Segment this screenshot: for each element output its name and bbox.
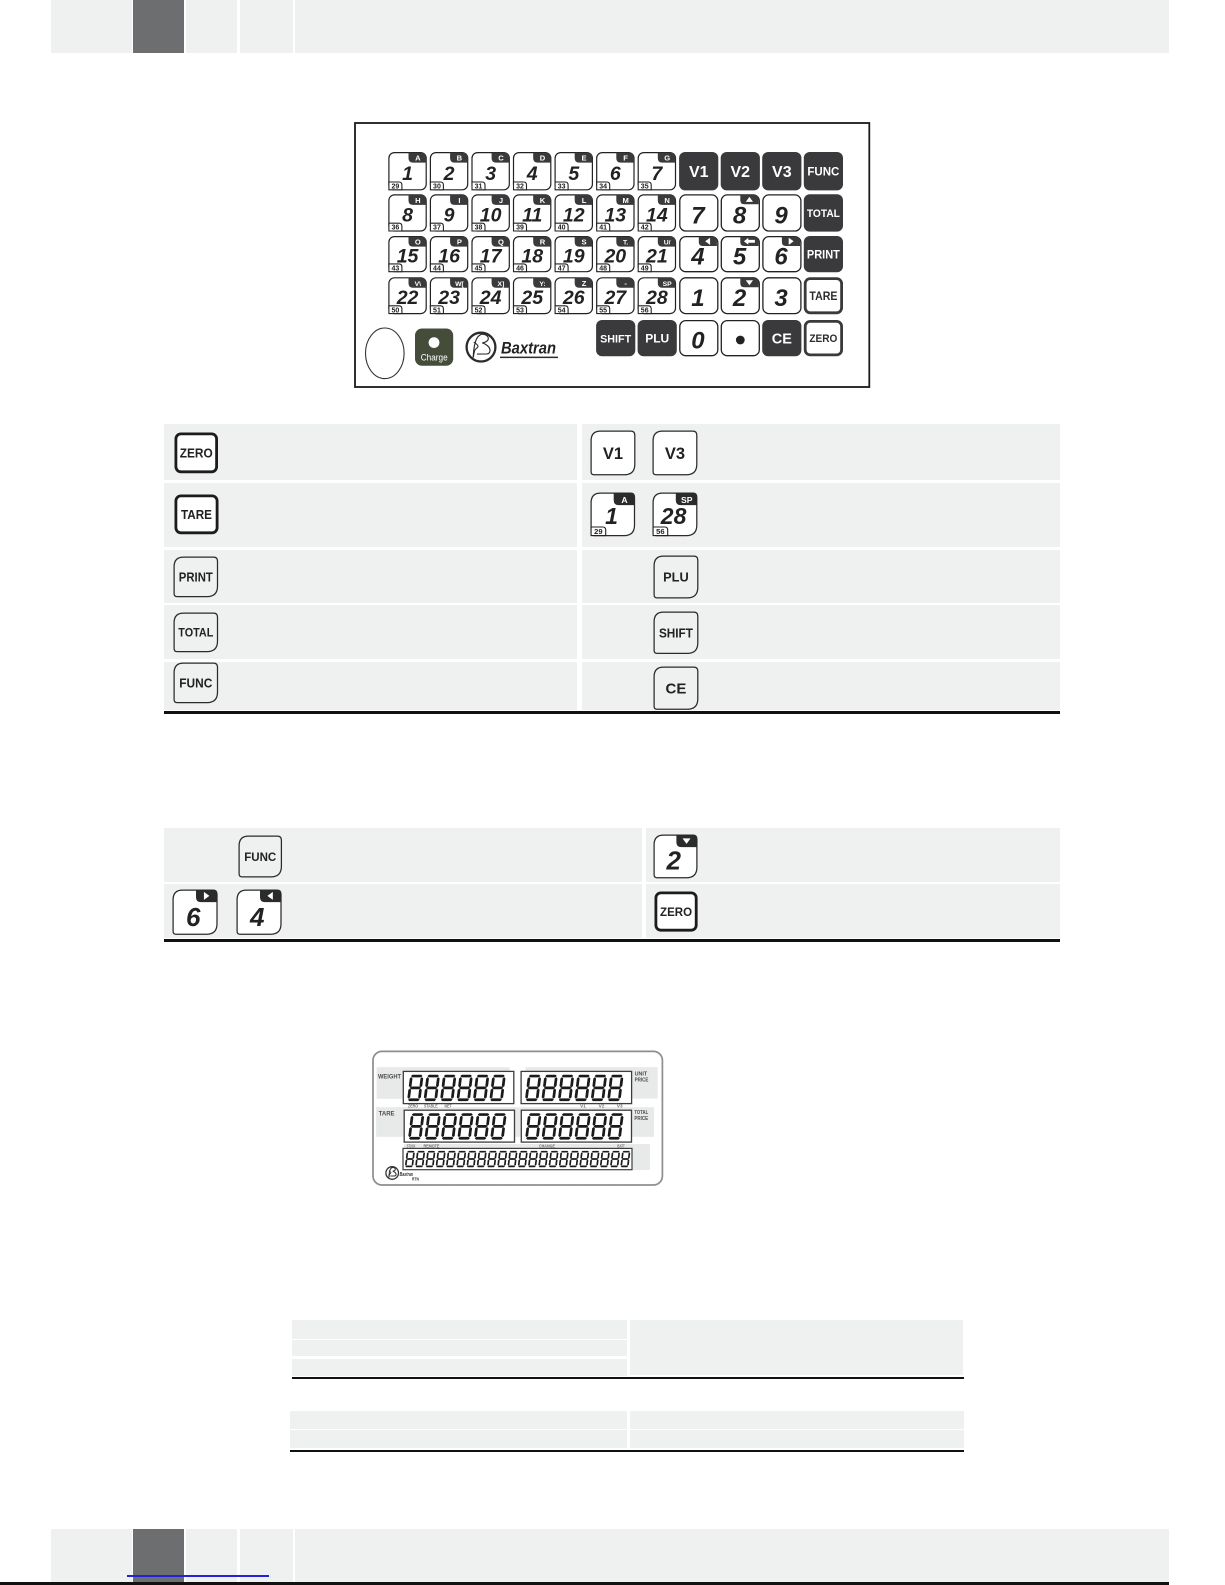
svg-text:3: 3 — [485, 163, 496, 185]
svg-text:21: 21 — [645, 245, 668, 267]
svg-text:PRINT: PRINT — [807, 247, 841, 261]
svg-text:SHIFT: SHIFT — [659, 626, 693, 640]
svg-text:PRICE: PRICE — [634, 1116, 648, 1122]
svg-text:4: 4 — [690, 243, 704, 270]
svg-text:NET: NET — [445, 1104, 452, 1109]
svg-text:14: 14 — [646, 204, 668, 226]
svg-text:16: 16 — [438, 245, 460, 267]
svg-text:PLU: PLU — [663, 569, 689, 584]
svg-text:0: 0 — [691, 327, 705, 354]
svg-text:10: 10 — [480, 204, 502, 226]
svg-text:37: 37 — [433, 225, 441, 232]
svg-text:ZERO: ZERO — [660, 905, 692, 919]
svg-text:1: 1 — [402, 163, 413, 185]
svg-text:19: 19 — [563, 245, 585, 267]
svg-text:17: 17 — [480, 245, 503, 267]
svg-text:25: 25 — [520, 287, 544, 309]
svg-text:ZERO: ZERO — [179, 446, 212, 460]
svg-text:3: 3 — [774, 285, 788, 312]
svg-text:33: 33 — [558, 184, 566, 191]
svg-text:E: E — [582, 154, 587, 163]
svg-text:TARE: TARE — [181, 508, 212, 522]
svg-text:7: 7 — [691, 202, 706, 229]
svg-text:31: 31 — [475, 184, 483, 191]
svg-text:13: 13 — [604, 204, 626, 226]
svg-text:24: 24 — [479, 287, 502, 309]
svg-text:30: 30 — [433, 184, 441, 191]
svg-text:1: 1 — [691, 285, 704, 312]
svg-text:RTN: RTN — [412, 1176, 419, 1181]
svg-text:Baxtran: Baxtran — [501, 340, 556, 358]
svg-text:9: 9 — [444, 204, 455, 226]
svg-text:2: 2 — [443, 163, 455, 185]
svg-text:6: 6 — [774, 243, 788, 270]
svg-text:8: 8 — [402, 204, 413, 226]
svg-text:20: 20 — [603, 245, 626, 267]
svg-text:35: 35 — [641, 184, 649, 191]
svg-text:TARE: TARE — [379, 1111, 395, 1118]
svg-text:CE: CE — [665, 681, 686, 698]
svg-text:26: 26 — [562, 287, 585, 309]
svg-text:STOCK: STOCK — [407, 1144, 416, 1149]
svg-text:TOTAL: TOTAL — [807, 208, 840, 220]
svg-text:11: 11 — [522, 204, 542, 226]
svg-text:A: A — [621, 495, 627, 505]
svg-text:34: 34 — [599, 184, 607, 191]
svg-text:28: 28 — [660, 503, 687, 529]
svg-text:V1: V1 — [689, 164, 709, 181]
svg-text:2: 2 — [732, 285, 747, 312]
svg-text:1: 1 — [605, 503, 618, 529]
svg-text:D: D — [540, 154, 546, 163]
svg-text:27: 27 — [603, 287, 627, 309]
svg-text:REMOTE: REMOTE — [424, 1144, 440, 1149]
svg-text:28: 28 — [645, 287, 668, 309]
svg-text:I: I — [458, 196, 460, 205]
svg-text:29: 29 — [594, 527, 602, 536]
svg-text:V3: V3 — [772, 164, 792, 181]
svg-text:H: H — [415, 196, 420, 205]
svg-text:6: 6 — [186, 902, 201, 932]
svg-text:F: F — [623, 154, 628, 163]
svg-text:SHIFT: SHIFT — [600, 333, 631, 345]
svg-text:BATT: BATT — [617, 1144, 624, 1149]
svg-text:C: C — [498, 154, 504, 163]
svg-text:5: 5 — [568, 163, 580, 185]
svg-text:36: 36 — [392, 225, 400, 232]
svg-text:V3: V3 — [665, 445, 685, 463]
svg-text:V1: V1 — [580, 1104, 586, 1109]
svg-text:23: 23 — [437, 287, 460, 309]
svg-text:7: 7 — [651, 163, 663, 185]
svg-text:WEIGHT: WEIGHT — [378, 1073, 401, 1080]
svg-text:ZERO: ZERO — [809, 333, 837, 345]
svg-text:V2: V2 — [599, 1104, 605, 1109]
svg-text:15: 15 — [397, 245, 420, 267]
svg-text:PRICE: PRICE — [635, 1078, 649, 1084]
svg-text:PRINT: PRINT — [178, 570, 212, 584]
svg-text:6: 6 — [610, 163, 621, 185]
svg-text:5: 5 — [733, 243, 747, 270]
svg-text:4: 4 — [249, 902, 265, 932]
svg-text:9: 9 — [774, 202, 788, 229]
svg-text:ZERO: ZERO — [408, 1104, 418, 1109]
svg-text:2: 2 — [666, 846, 682, 876]
svg-text:FUNC: FUNC — [244, 850, 276, 864]
svg-text:V2: V2 — [731, 164, 751, 181]
svg-text:V3: V3 — [617, 1104, 623, 1109]
svg-text:8: 8 — [733, 202, 747, 229]
svg-text:PLU: PLU — [645, 331, 669, 345]
svg-text:4: 4 — [526, 163, 538, 185]
svg-text:CE: CE — [772, 331, 792, 347]
svg-text:18: 18 — [521, 245, 543, 267]
svg-text:STABLE: STABLE — [424, 1104, 438, 1109]
svg-text:B: B — [457, 154, 463, 163]
svg-text:29: 29 — [392, 184, 400, 191]
svg-text:G: G — [664, 154, 670, 163]
svg-text:FUNC: FUNC — [807, 166, 839, 178]
svg-text:CHANGE: CHANGE — [539, 1144, 555, 1149]
svg-text:TOTAL: TOTAL — [178, 626, 213, 640]
svg-text:12: 12 — [563, 204, 585, 226]
svg-text:TARE: TARE — [809, 290, 837, 303]
svg-text:Charge: Charge — [421, 352, 448, 362]
svg-text:A: A — [415, 154, 421, 163]
svg-text:V1: V1 — [602, 445, 622, 463]
svg-text:FUNC: FUNC — [179, 676, 212, 690]
svg-text:22: 22 — [396, 287, 419, 309]
svg-text:32: 32 — [516, 184, 524, 191]
